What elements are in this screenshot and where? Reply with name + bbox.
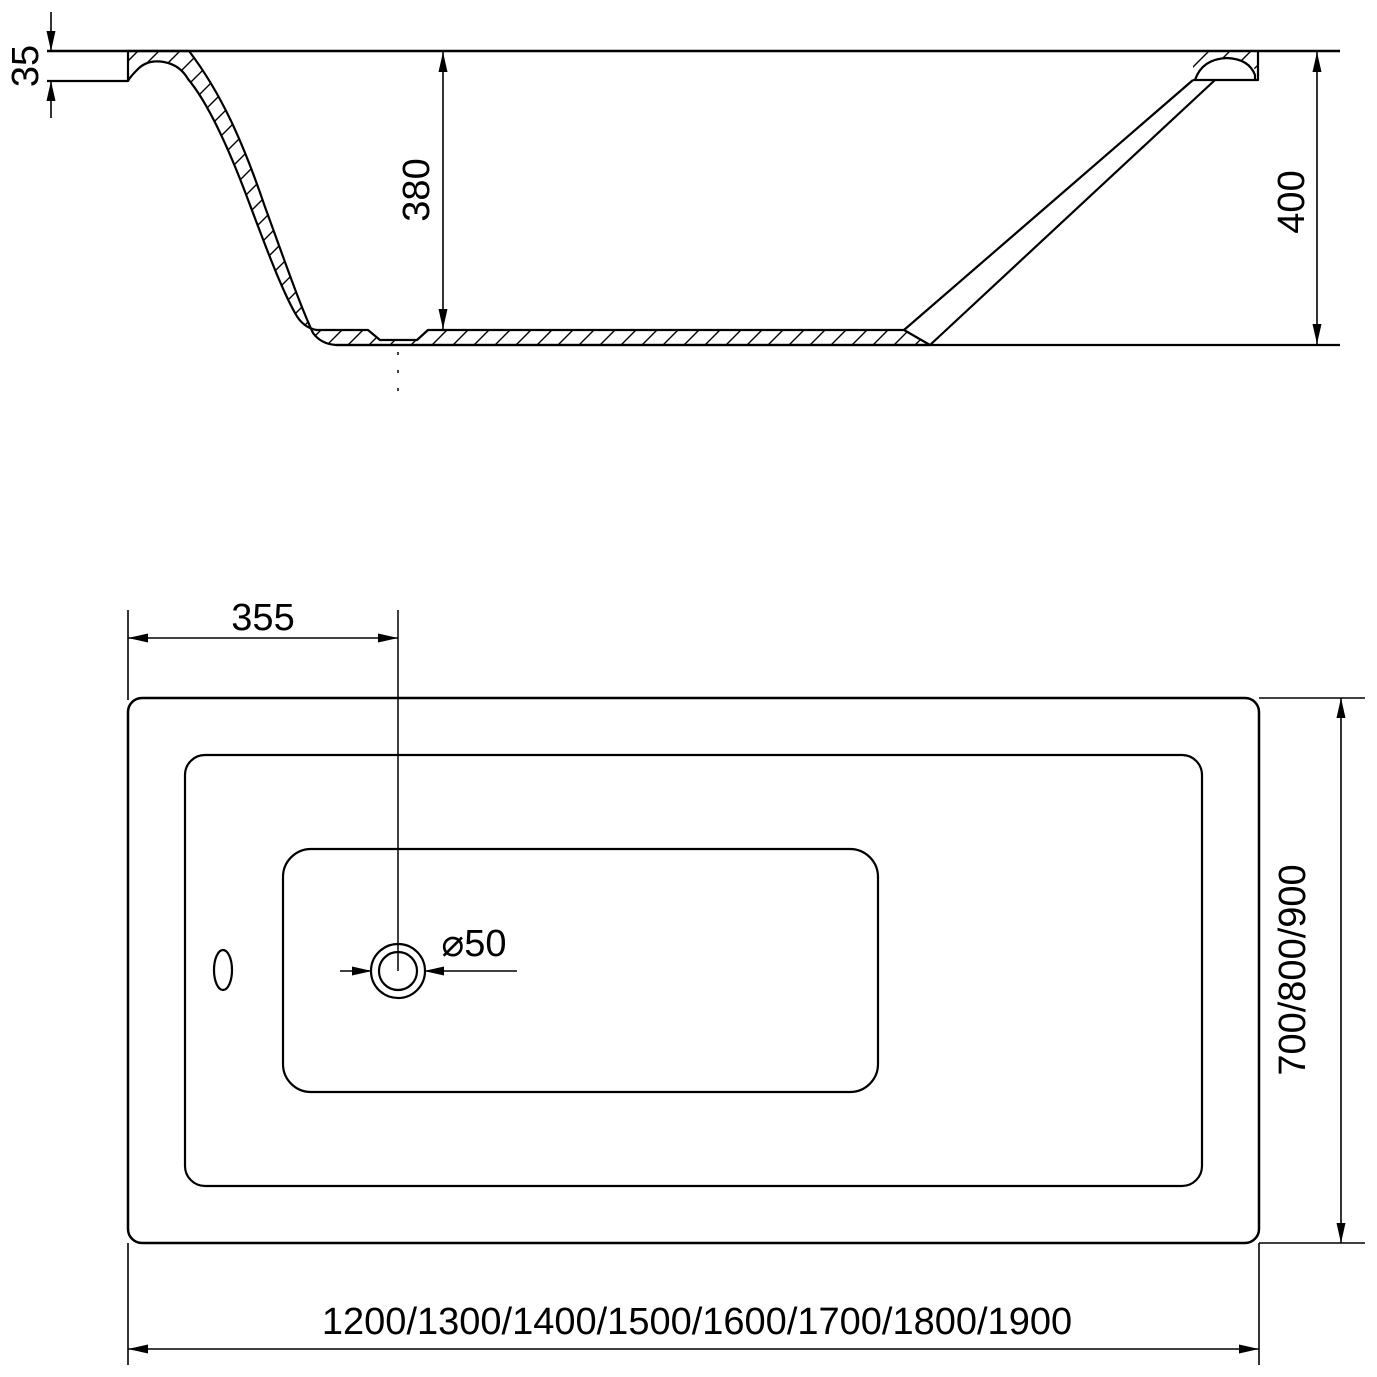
dim-355-arrow-right-icon — [378, 634, 398, 643]
dim-35-arrow-down-icon — [47, 31, 56, 51]
dim-drain-offset: 355 — [128, 597, 398, 700]
dim-width-options: 700/800/900 — [1259, 698, 1365, 1243]
dim-dia50-label: ⌀50 — [441, 923, 506, 965]
tub-basin-bottom-edge — [283, 849, 878, 1092]
dim-400-label: 400 — [1271, 170, 1313, 233]
dim-total-height: 400 — [1271, 52, 1322, 344]
dim-length-arrow-right-icon — [1239, 1345, 1259, 1354]
dim-380-arrow-down-icon — [439, 309, 448, 329]
section-view: 35 380 400 — [5, 12, 1340, 392]
dim-rim-thickness: 35 — [5, 12, 56, 118]
tub-inner-rim-edge — [185, 755, 1202, 1186]
dim-35-arrow-up-icon — [47, 81, 56, 101]
dim-width-arrow-down-icon — [1337, 1223, 1346, 1243]
dim-length-options: 1200/1300/1400/1500/1600/1700/1800/1900 — [128, 1243, 1259, 1365]
dim-355-arrow-left-icon — [128, 634, 148, 643]
dim-400-arrow-up-icon — [1313, 52, 1322, 72]
dim-35-label: 35 — [5, 45, 47, 87]
dim-drain-diameter: ⌀50 — [340, 923, 517, 976]
dim-inner-depth: 380 — [396, 52, 448, 329]
dim-dia50-arrow-left-icon — [424, 967, 444, 976]
right-wall-inner-line — [904, 80, 1193, 330]
dim-length-label: 1200/1300/1400/1500/1600/1700/1800/1900 — [322, 1301, 1072, 1343]
left-wall-floor-section — [128, 51, 930, 345]
dim-380-label: 380 — [396, 158, 438, 221]
dim-width-label: 700/800/900 — [1272, 864, 1314, 1075]
right-wall-outer-line — [930, 80, 1215, 345]
dim-355-label: 355 — [231, 597, 294, 639]
dim-dia50-arrow-right-icon — [352, 967, 372, 976]
dim-400-arrow-down-icon — [1313, 324, 1322, 344]
tub-outer-edge — [128, 698, 1259, 1243]
technical-drawing-canvas: 35 380 400 — [0, 0, 1377, 1377]
dim-380-arrow-up-icon — [439, 52, 448, 72]
dim-length-arrow-left-icon — [128, 1345, 148, 1354]
dim-width-arrow-up-icon — [1337, 698, 1346, 718]
bathtub-technical-drawing: 35 380 400 — [0, 0, 1377, 1377]
plan-view: 355 ⌀50 700/800/900 1200/1300/1400/1 — [128, 597, 1365, 1365]
overflow-hole — [214, 950, 232, 990]
